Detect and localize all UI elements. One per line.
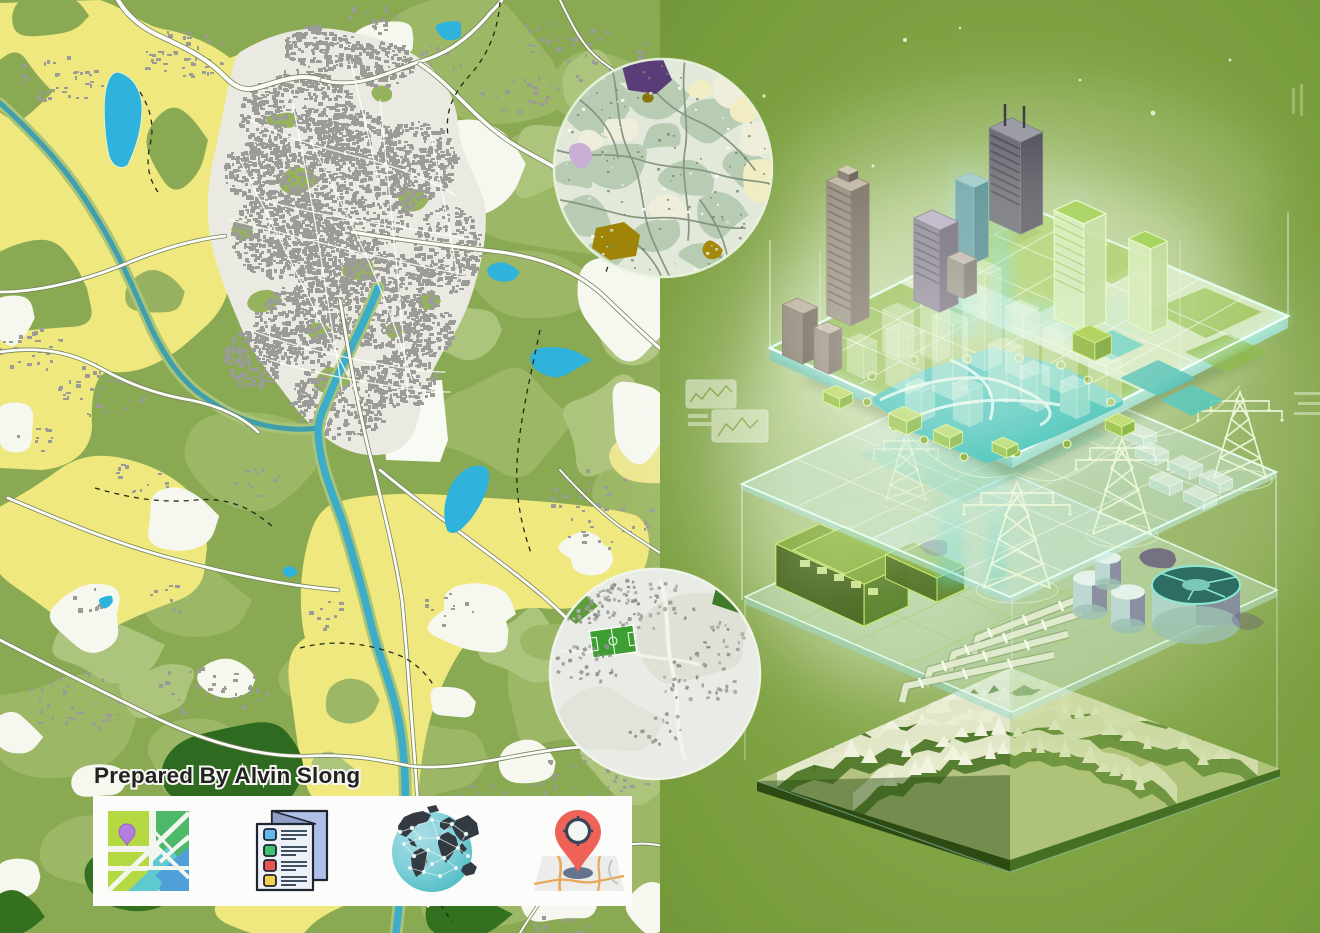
svg-text:Prepared By Alvin Slong: Prepared By Alvin Slong <box>94 763 360 788</box>
